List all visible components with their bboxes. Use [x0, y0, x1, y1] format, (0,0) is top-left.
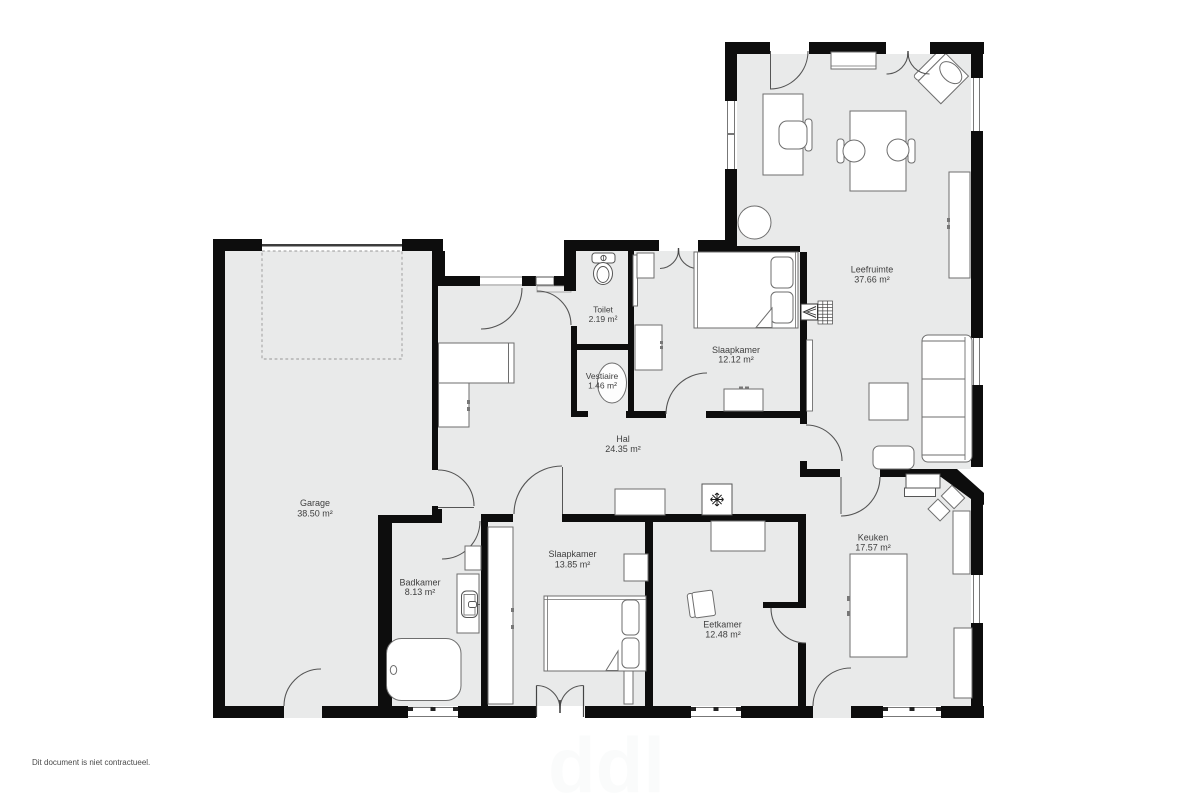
svg-text:12.12 m²: 12.12 m²: [718, 355, 754, 365]
svg-text:ddl: ddl: [548, 721, 665, 800]
svg-text:37.66 m²: 37.66 m²: [854, 275, 890, 285]
svg-text:Toilet: Toilet: [593, 305, 613, 315]
svg-text:Badkamer: Badkamer: [399, 578, 440, 588]
svg-text:8.13 m²: 8.13 m²: [405, 587, 436, 597]
svg-text:17.57 m²: 17.57 m²: [855, 543, 891, 553]
svg-text:Garage: Garage: [300, 498, 330, 508]
svg-text:Eetkamer: Eetkamer: [703, 620, 742, 630]
svg-text:Slaapkamer: Slaapkamer: [712, 345, 760, 355]
svg-text:Leefruimte: Leefruimte: [851, 265, 894, 275]
svg-text:Dit document is niet contractu: Dit document is niet contractueel.: [32, 758, 150, 767]
svg-text:Slaapkamer: Slaapkamer: [548, 549, 596, 559]
svg-text:12.48 m²: 12.48 m²: [705, 630, 741, 640]
svg-text:24.35 m²: 24.35 m²: [605, 444, 641, 454]
svg-text:Keuken: Keuken: [858, 533, 889, 543]
svg-text:38.50 m²: 38.50 m²: [297, 509, 333, 519]
svg-text:2.19 m²: 2.19 m²: [589, 314, 618, 324]
svg-text:13.85 m²: 13.85 m²: [555, 560, 591, 570]
svg-text:Vestiaire: Vestiaire: [586, 371, 619, 381]
svg-text:Hal: Hal: [616, 434, 630, 444]
svg-text:1.46 m²: 1.46 m²: [588, 381, 617, 391]
